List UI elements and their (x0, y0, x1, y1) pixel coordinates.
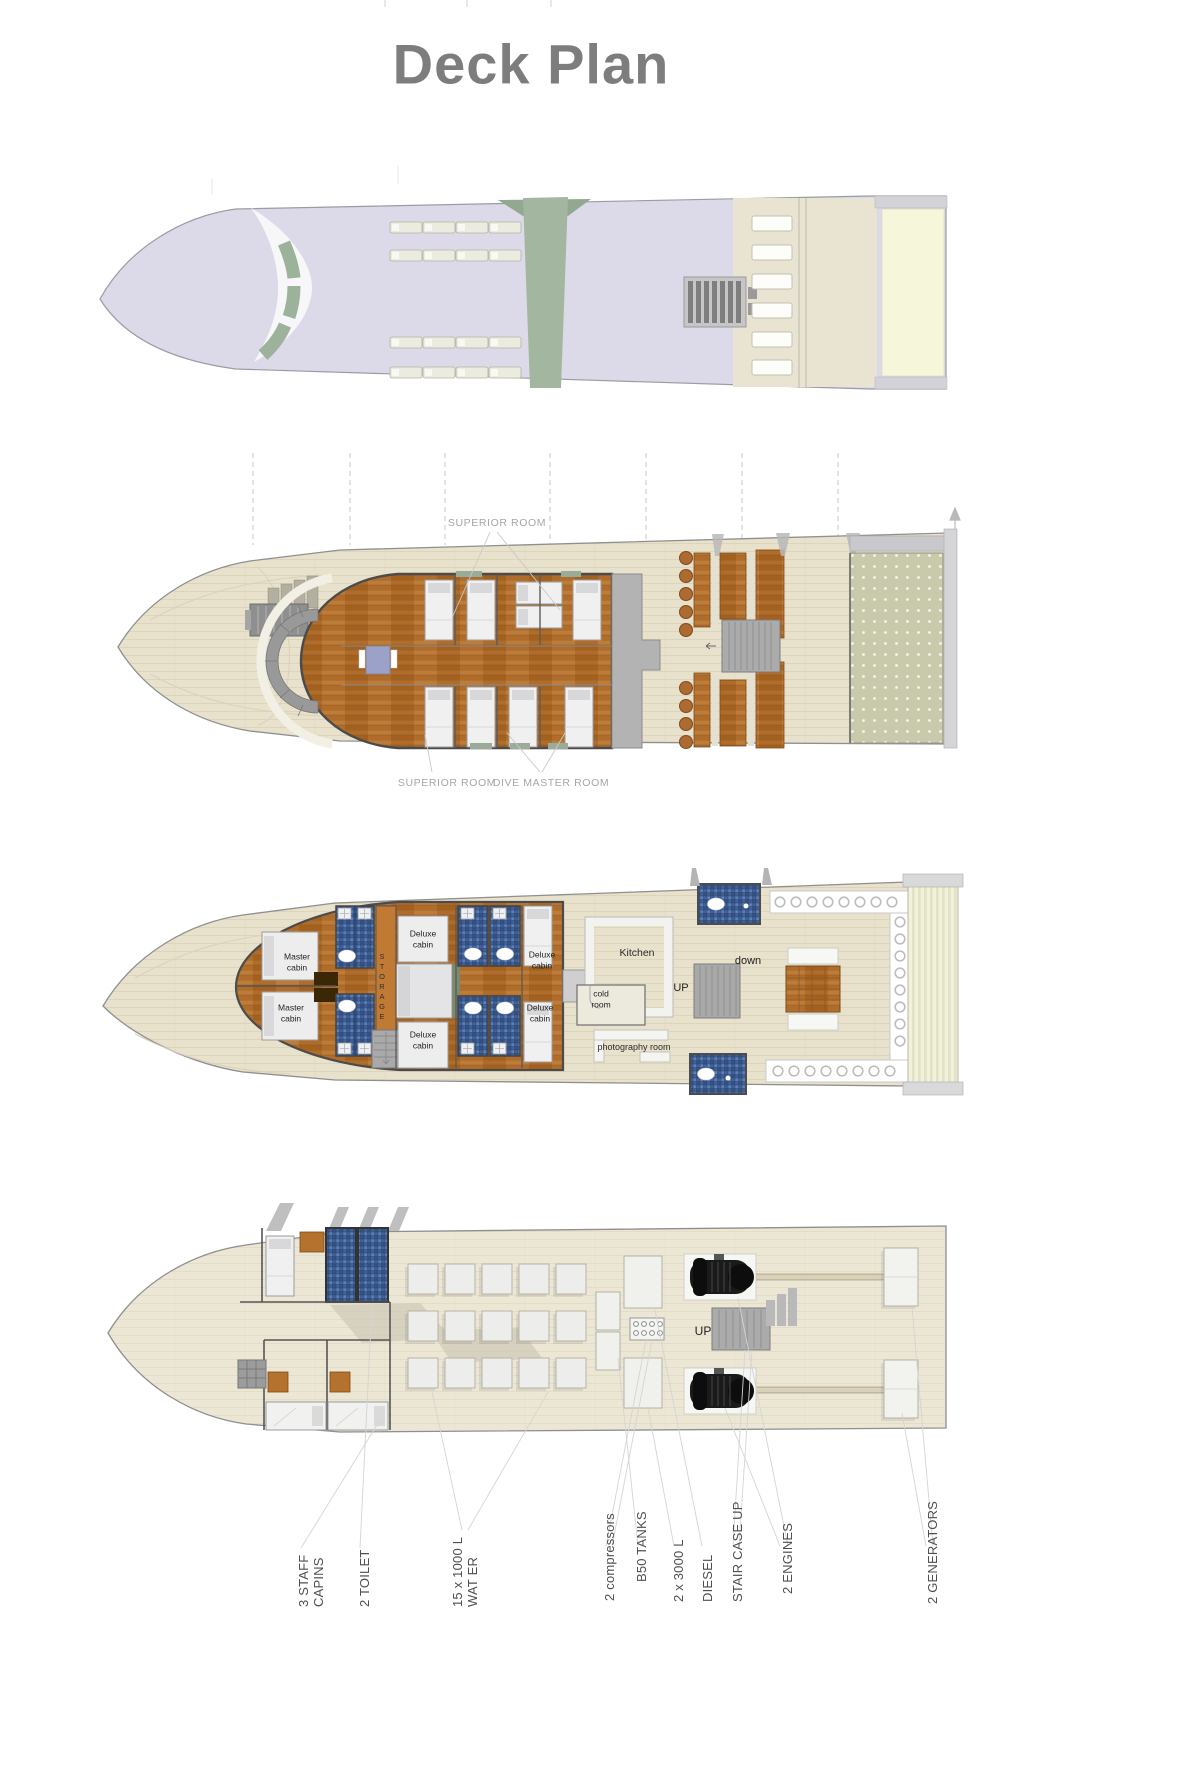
aft-bathroom-bottom (690, 1054, 746, 1094)
label-superior-room-top: SUPERIOR ROOM (448, 517, 546, 529)
main-deck-plan (103, 868, 963, 1095)
label-deluxe-cabin-right-top: Deluxecabin (529, 949, 555, 970)
callout-staff-cabins: 3 STAFFCAPINS (296, 1555, 326, 1607)
main-staircase[interactable] (694, 964, 740, 1018)
label-master-cabin-top: Mastercabin (284, 951, 310, 972)
crew-bathrooms (326, 1228, 388, 1302)
lower-deck-plan (108, 1203, 946, 1432)
label-kitchen: Kitchen (619, 947, 654, 959)
label-dive-master-room: DIVE MASTER ROOM (493, 777, 609, 789)
callout-2x3000: 2 x 3000 L (671, 1539, 686, 1602)
label-master-cabin-bottom: Mastercabin (278, 1002, 304, 1023)
label-cold-room: coldroom (591, 988, 610, 1009)
dive-deck (850, 553, 943, 743)
section-dashed-lines (253, 453, 838, 545)
label-stairs-down-main-deck: down (735, 955, 761, 967)
stern-cap (944, 529, 957, 748)
callout-generators: 2 GENERATORS (925, 1501, 940, 1604)
callout-diesel: DIESEL (700, 1555, 715, 1602)
deck-plan-drawing (0, 0, 1193, 1781)
aft-bathroom-top (690, 868, 772, 924)
sun-deck-stairs (684, 277, 757, 327)
page-title: Deck Plan (393, 32, 670, 97)
callout-b50-tanks: B50 TANKS (634, 1511, 649, 1582)
label-storage: STORAGE (378, 952, 386, 1064)
small-stairs[interactable] (238, 1360, 266, 1388)
callout-toilets: 2 TOILET (357, 1550, 372, 1607)
label-stairs-up-main-deck: UP (673, 982, 688, 994)
callout-engines: 2 ENGINES (780, 1523, 795, 1594)
sun-deck-stern-platform (882, 209, 944, 376)
label-photography-room: photography room (597, 1042, 670, 1052)
dining-table (786, 948, 840, 1030)
callout-compressors: 2 compressors (602, 1513, 617, 1601)
sun-deck-plan (100, 196, 947, 389)
label-deluxe-cabin-top: Deluxecabin (410, 928, 436, 949)
top-construction-ticks (212, 0, 551, 194)
callout-staircase-up: STAIR CASE UP (730, 1501, 745, 1602)
swim-platform (903, 874, 963, 1095)
aft-roof-band (850, 536, 948, 551)
label-stairs-up-lower-deck: UP (695, 1324, 712, 1338)
deck-plan-page: Deck Plan SUPERIOR ROOM SUPERIOR ROOM DI… (0, 0, 1193, 1781)
cold-room (577, 985, 645, 1025)
label-superior-room-bottom: SUPERIOR ROOM (398, 777, 496, 789)
callout-water-tanks: 15 x 1000 LWAT ER (450, 1537, 480, 1607)
water-tanks (405, 1264, 586, 1391)
label-deluxe-cabin-bottom: Deluxecabin (410, 1029, 436, 1050)
walkway-strip (523, 197, 568, 388)
wall-shadow-flares (266, 1203, 409, 1231)
upper-deck-plan (118, 453, 960, 772)
label-deluxe-cabin-right-bottom: Deluxecabin (527, 1002, 553, 1023)
